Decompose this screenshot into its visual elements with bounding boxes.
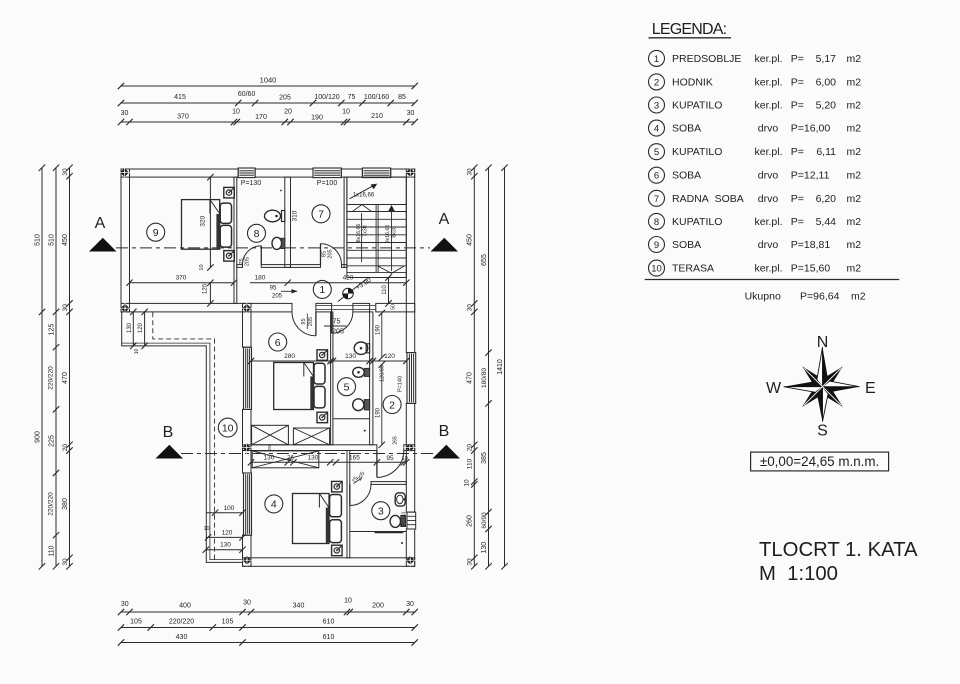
- svg-text:385: 385: [481, 452, 488, 464]
- svg-text:ker.pl.: ker.pl.: [755, 216, 783, 228]
- svg-text:E: E: [865, 380, 876, 397]
- svg-text:30: 30: [467, 304, 474, 312]
- svg-text:P=140: P=140: [398, 376, 404, 392]
- svg-text:320: 320: [199, 215, 206, 226]
- svg-text:KUPATILO: KUPATILO: [672, 146, 722, 158]
- svg-text:26: 26: [287, 455, 294, 461]
- svg-text:P=: P=: [791, 76, 804, 88]
- svg-text:5: 5: [344, 382, 350, 394]
- svg-text:drvo: drvo: [758, 193, 779, 205]
- svg-text:P=: P=: [791, 193, 804, 205]
- svg-text:30: 30: [62, 168, 69, 176]
- svg-text:340: 340: [293, 603, 305, 610]
- svg-text:Ukupno: Ukupno: [745, 291, 781, 303]
- svg-text:30: 30: [407, 110, 415, 117]
- svg-text:5,20: 5,20: [816, 100, 837, 112]
- svg-text:m2: m2: [847, 193, 862, 205]
- svg-text:205: 205: [332, 329, 344, 336]
- svg-text:1: 1: [319, 284, 325, 296]
- svg-text:10: 10: [402, 456, 408, 462]
- svg-text:7: 7: [318, 209, 324, 221]
- svg-text:m2: m2: [847, 53, 862, 65]
- svg-text:220/220: 220/220: [169, 619, 194, 626]
- svg-text:B: B: [439, 423, 450, 440]
- svg-text:120: 120: [138, 322, 144, 333]
- svg-text:10: 10: [203, 526, 209, 532]
- svg-text:470: 470: [467, 372, 474, 384]
- svg-text:P=130: P=130: [241, 180, 262, 187]
- svg-text:120: 120: [203, 283, 209, 294]
- svg-text:380: 380: [62, 498, 69, 510]
- svg-text:105: 105: [222, 619, 234, 626]
- svg-text:220/220: 220/220: [48, 492, 55, 516]
- svg-text:P=: P=: [791, 100, 804, 112]
- svg-text:8: 8: [254, 228, 260, 240]
- svg-text:260: 260: [467, 515, 474, 527]
- svg-text:8x16,66: 8x16,66: [356, 224, 362, 243]
- svg-text:6,11: 6,11: [816, 146, 836, 158]
- svg-text:9x16,66: 9x16,66: [385, 225, 391, 244]
- svg-text:m2: m2: [847, 76, 862, 88]
- svg-text:A: A: [439, 211, 450, 228]
- svg-text:SOBA: SOBA: [672, 123, 701, 135]
- svg-text:110: 110: [382, 285, 388, 295]
- svg-text:5,44: 5,44: [816, 216, 837, 228]
- svg-text:225: 225: [49, 435, 56, 447]
- svg-text:30: 30: [467, 558, 474, 566]
- svg-text:7x30: 7x30: [363, 225, 369, 236]
- svg-text:KUPATILO: KUPATILO: [672, 100, 722, 112]
- svg-text:LEGENDA:: LEGENDA:: [652, 21, 727, 38]
- svg-text:2: 2: [389, 399, 395, 411]
- svg-text:200: 200: [372, 603, 384, 610]
- svg-text:30: 30: [467, 168, 474, 176]
- svg-text:m2: m2: [847, 239, 862, 251]
- svg-text:400: 400: [179, 603, 191, 610]
- svg-text:drvo: drvo: [758, 239, 779, 251]
- svg-text:75: 75: [333, 319, 341, 326]
- svg-text:370: 370: [177, 114, 189, 121]
- svg-text:95: 95: [270, 286, 277, 292]
- svg-text:95: 95: [386, 455, 394, 462]
- svg-text:130: 130: [345, 353, 356, 360]
- svg-text:m2: m2: [847, 170, 862, 182]
- svg-text:P=16,00: P=16,00: [791, 123, 831, 135]
- svg-text:170: 170: [255, 114, 267, 121]
- svg-text:1x16,66: 1x16,66: [353, 193, 375, 199]
- svg-text:6,20: 6,20: [816, 193, 837, 205]
- svg-text:8x30: 8x30: [392, 226, 398, 237]
- svg-text:W: W: [766, 380, 782, 397]
- svg-text:180/80: 180/80: [481, 368, 488, 388]
- svg-text:210: 210: [371, 113, 383, 120]
- svg-text:ker.pl.: ker.pl.: [755, 100, 783, 112]
- svg-text:2: 2: [654, 77, 659, 88]
- svg-text:60/90: 60/90: [481, 512, 488, 529]
- svg-text:10: 10: [342, 109, 350, 116]
- svg-text:30: 30: [243, 600, 251, 607]
- svg-text:110: 110: [49, 545, 56, 556]
- svg-text:610: 610: [323, 619, 335, 626]
- svg-text:20: 20: [62, 444, 69, 452]
- svg-text:6: 6: [275, 337, 281, 349]
- svg-text:RADNA SOBA: RADNA SOBA: [672, 193, 744, 205]
- svg-text:1: 1: [654, 54, 659, 65]
- svg-text:100/160: 100/160: [364, 94, 389, 101]
- svg-text:1040: 1040: [260, 76, 277, 85]
- svg-text:220/220: 220/220: [48, 366, 55, 390]
- svg-text:m2: m2: [847, 146, 862, 158]
- svg-text:P=140: P=140: [402, 511, 408, 526]
- svg-text:190: 190: [376, 324, 382, 335]
- svg-text:205: 205: [272, 294, 283, 300]
- svg-text:4: 4: [271, 499, 277, 511]
- svg-text:M 1:100: M 1:100: [759, 563, 838, 585]
- svg-text:TLOCRT 1. KATA: TLOCRT 1. KATA: [759, 539, 918, 561]
- svg-text:120: 120: [384, 353, 395, 360]
- svg-text:m2: m2: [851, 291, 866, 303]
- svg-text:470: 470: [62, 372, 69, 384]
- svg-text:20: 20: [267, 445, 273, 451]
- svg-text:430: 430: [176, 634, 188, 641]
- svg-text:30: 30: [62, 304, 69, 312]
- svg-text:P=12,11: P=12,11: [791, 170, 830, 182]
- svg-text:N: N: [817, 334, 829, 351]
- svg-text:5: 5: [654, 147, 659, 158]
- svg-text:125: 125: [49, 324, 56, 336]
- svg-text:30: 30: [62, 558, 69, 566]
- svg-text:450: 450: [467, 234, 474, 246]
- svg-text:m2: m2: [847, 100, 862, 112]
- svg-text:P=: P=: [791, 53, 804, 65]
- svg-text:450: 450: [62, 234, 69, 246]
- svg-text:P=: P=: [791, 216, 804, 228]
- svg-text:m2: m2: [847, 263, 862, 275]
- svg-text:30: 30: [406, 601, 414, 608]
- svg-text:ker.pl.: ker.pl.: [755, 263, 783, 275]
- svg-text:205: 205: [327, 249, 333, 258]
- svg-text:20: 20: [467, 444, 474, 452]
- svg-text:SOBA: SOBA: [672, 170, 701, 182]
- svg-text:P=18,81: P=18,81: [791, 239, 831, 251]
- svg-text:130: 130: [220, 542, 231, 549]
- svg-text:drvo: drvo: [758, 170, 779, 182]
- svg-text:ker.pl.: ker.pl.: [755, 53, 783, 65]
- svg-text:120/80: 120/80: [380, 365, 386, 382]
- svg-text:3: 3: [654, 101, 659, 112]
- svg-text:110: 110: [467, 458, 474, 469]
- svg-text:100/120: 100/120: [314, 94, 339, 101]
- svg-text:10: 10: [344, 598, 352, 605]
- svg-text:20: 20: [284, 109, 292, 116]
- svg-text:190: 190: [376, 407, 382, 418]
- svg-text:B: B: [163, 424, 174, 441]
- svg-text:280: 280: [284, 353, 295, 360]
- svg-text:120: 120: [222, 529, 233, 536]
- svg-text:drvo: drvo: [758, 123, 779, 135]
- svg-text:205: 205: [245, 257, 251, 266]
- svg-text:165: 165: [349, 455, 360, 462]
- svg-text:510: 510: [49, 234, 56, 246]
- svg-text:10: 10: [199, 264, 205, 270]
- svg-text:205: 205: [308, 317, 314, 326]
- svg-text:±0,00=24,65 m.n.m.: ±0,00=24,65 m.n.m.: [760, 454, 879, 469]
- svg-text:A: A: [95, 215, 106, 232]
- svg-text:510: 510: [35, 234, 42, 246]
- svg-text:9: 9: [153, 227, 159, 239]
- svg-text:P=100: P=100: [317, 180, 338, 187]
- svg-text:100: 100: [224, 505, 235, 512]
- svg-text:HODNIK: HODNIK: [672, 76, 713, 88]
- svg-text:370: 370: [176, 274, 187, 281]
- svg-text:10: 10: [232, 109, 240, 116]
- svg-text:P=96,64: P=96,64: [800, 291, 840, 303]
- svg-text:ker.pl.: ker.pl.: [755, 146, 783, 158]
- svg-text:S: S: [817, 423, 828, 440]
- svg-text:SOBA: SOBA: [672, 239, 701, 251]
- svg-text:130: 130: [264, 454, 275, 461]
- svg-text:900: 900: [35, 431, 42, 443]
- svg-text:655: 655: [481, 254, 488, 266]
- svg-text:7: 7: [654, 194, 659, 205]
- svg-text:265: 265: [393, 436, 399, 445]
- svg-text:ker.pl.: ker.pl.: [755, 76, 783, 88]
- svg-text:180: 180: [255, 274, 266, 281]
- svg-text:75: 75: [348, 94, 356, 101]
- svg-text:30: 30: [121, 110, 129, 117]
- svg-text:m2: m2: [847, 216, 862, 228]
- svg-text:6,00: 6,00: [816, 76, 837, 88]
- svg-text:105: 105: [130, 619, 142, 626]
- svg-text:310: 310: [291, 210, 298, 221]
- svg-text:130: 130: [308, 454, 319, 461]
- svg-text:190: 190: [311, 115, 323, 122]
- svg-text:TERASA: TERASA: [672, 263, 714, 275]
- svg-text:610: 610: [323, 634, 335, 641]
- svg-text:1410: 1410: [497, 359, 504, 375]
- svg-text:50: 50: [391, 304, 397, 310]
- svg-text:10: 10: [134, 349, 140, 355]
- svg-text:10: 10: [222, 422, 234, 434]
- svg-text:KUPATILO: KUPATILO: [672, 216, 722, 228]
- svg-text:415: 415: [174, 94, 186, 101]
- svg-text:3: 3: [378, 506, 384, 518]
- svg-text:PREDSOBLJE: PREDSOBLJE: [672, 53, 741, 65]
- svg-text:205: 205: [279, 95, 291, 102]
- svg-text:m2: m2: [847, 123, 862, 135]
- svg-text:60/60: 60/60: [238, 91, 256, 98]
- svg-text:85: 85: [398, 94, 406, 101]
- svg-text:P=15,60: P=15,60: [791, 263, 831, 275]
- svg-text:95: 95: [301, 318, 307, 324]
- svg-text:10: 10: [464, 479, 471, 487]
- svg-text:P=: P=: [791, 146, 804, 158]
- svg-text:5,17: 5,17: [816, 53, 837, 65]
- svg-text:30: 30: [121, 601, 129, 608]
- svg-text:130: 130: [127, 322, 133, 333]
- svg-text:8: 8: [654, 217, 659, 228]
- svg-text:4: 4: [654, 124, 659, 135]
- svg-text:6: 6: [654, 171, 659, 182]
- svg-text:130: 130: [481, 542, 488, 554]
- svg-text:420: 420: [343, 274, 354, 281]
- svg-text:9: 9: [654, 240, 659, 251]
- svg-text:10: 10: [651, 264, 662, 275]
